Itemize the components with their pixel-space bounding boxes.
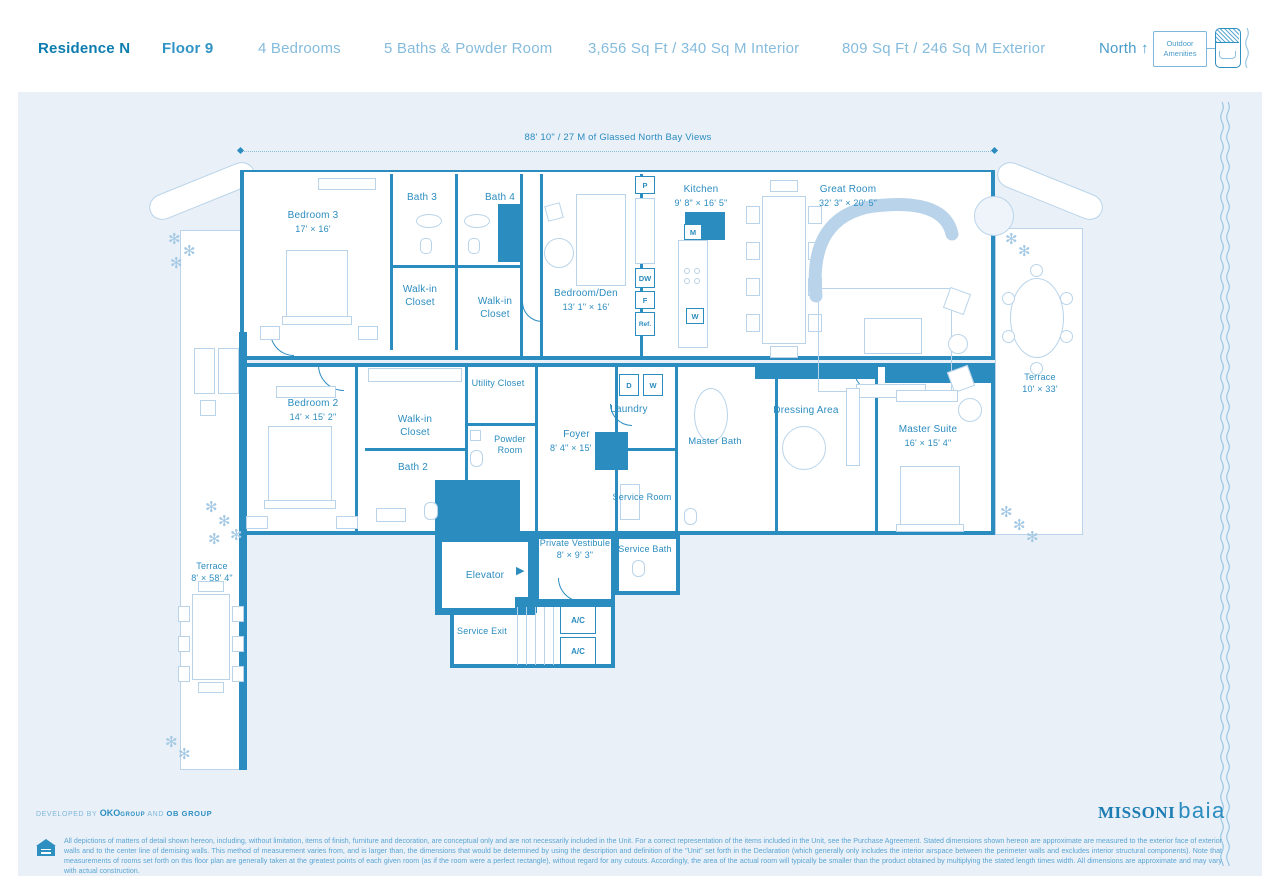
room-dims: 8' × 9' 3" [531,550,619,561]
toilet [468,238,480,254]
residence-title: Residence N [38,40,130,57]
cooktop-burner [694,268,700,274]
floor-label: Floor 9 [162,40,213,57]
room-name: Terrace [1010,372,1070,383]
wall-segment [540,174,543,356]
room-label-laundry: Laundry [598,404,660,417]
developed-by-and: AND [147,811,164,818]
equal-bar [41,849,51,851]
room-name: Bedroom/Den [540,288,632,301]
ac-unit: A/C [560,637,596,665]
north-indicator: North ↑ [1099,40,1149,57]
wine-cooler-box: W [686,308,704,324]
plan-panel: 88' 10" / 27 M of Glassed North Bay View… [18,92,1262,876]
plant-icon: ✻ [178,747,191,762]
wall-segment [775,367,778,531]
glass-view-note: 88' 10" / 27 M of Glassed North Bay View… [418,132,818,144]
room-label-elevator: Elevator [442,570,528,583]
room-label-service-exit: Service Exit [454,626,510,637]
dresser [896,390,958,402]
dining-chair [746,242,760,260]
developer-oko-suffix: GROUP [120,812,145,818]
dining-chair [746,206,760,224]
sink [416,214,442,228]
desk [576,194,626,286]
dresser [276,386,336,398]
room-dims: 17' × 16' [243,224,383,235]
kitchen-island [678,240,708,348]
side-table [948,334,968,354]
room-dims: 8' × 58' 4" [182,573,242,584]
dimension-line [242,151,993,152]
wall-segment [675,367,678,531]
column-decoration [974,196,1014,236]
terrace-table [1010,278,1064,358]
room-label-kitchen: Kitchen 9' 8" × 16' 5" [655,184,747,209]
fridge-box: Ref. [635,312,655,336]
interior-area-label: 3,656 Sq Ft / 340 Sq M Interior [588,40,799,57]
plant-icon: ✻ [1018,244,1031,259]
developer-ob-logo: OB GROUP [167,809,213,818]
room-label-walkin-closet-3: Walk-in Closet [385,414,445,439]
lounge-chair [218,348,239,394]
wall-segment [355,367,358,531]
developed-by-line: DEVELOPED BY OKOGROUP AND OB GROUP [36,808,212,818]
room-label-utility-closet: Utility Closet [468,378,528,389]
terrace-chair [1060,292,1073,305]
equal-housing-icon [36,839,56,857]
terrace-chair [232,636,244,652]
equal-bar [41,852,51,854]
plant-icon: ✻ [1000,505,1013,520]
bed-headboard [282,316,352,325]
room-dims: 9' 8" × 16' 5" [655,198,747,209]
terrace-chair [1030,264,1043,277]
terrace-chair [178,606,190,622]
pantry-box: P [635,176,655,194]
cooktop-burner [684,268,690,274]
outdoor-amenities-legend: Outdoor Amenities [1153,31,1207,67]
dryer-box: D [619,374,639,396]
coffee-table [864,318,922,354]
room-dims: 16' × 15' 4" [878,438,978,449]
room-name: Private Vestibule [531,538,619,549]
window-box [246,516,268,529]
plant-icon: ✻ [165,735,178,750]
wall-segment [465,423,535,426]
washer-box: W [643,374,663,396]
sink [464,214,490,228]
baths-label: 5 Baths & Powder Room [384,40,552,57]
cabinet [635,198,655,264]
wall-segment [455,174,458,350]
plant-icon: ✻ [183,244,196,259]
ottoman [782,426,826,470]
room-label-master-suite: Master Suite 16' × 15' 4" [878,424,978,449]
floor-plan-sheet: { "header": { "residence": "Residence N"… [0,0,1280,896]
terrace-chair [178,666,190,682]
toilet [470,450,483,467]
room-dims: 13' 1" × 16' [540,302,632,313]
closet-shelf [846,388,860,466]
room-label-terrace-left: Terrace 8' × 58' 4" [182,561,242,585]
terrace-chair [178,636,190,652]
terrace-chair [1060,330,1073,343]
room-dims: 10' × 33' [1010,384,1070,395]
round-table [544,238,574,268]
vanity [376,508,406,522]
room-label-service-bath: Service Bath [614,544,676,555]
plant-icon: ✻ [1013,518,1026,533]
side-table [200,400,216,416]
toilet [424,502,438,520]
bedrooms-label: 4 Bedrooms [258,40,341,57]
nightstand [260,326,280,340]
room-label-bath3: Bath 3 [392,192,452,205]
house-body [37,846,55,856]
freezer-box: F [635,291,655,309]
bed [900,466,960,528]
dimension-endpoint [237,147,244,154]
plant-icon: ✻ [170,256,183,271]
toilet [684,508,697,525]
terrace-chair [232,666,244,682]
header-bar: Residence N Floor 9 4 Bedrooms 5 Baths &… [0,0,1280,92]
wall-fill [435,480,520,535]
wall-fill [498,204,520,262]
terrace-chair [1002,330,1015,343]
legal-disclaimer: All depictions of matters of detail show… [64,836,1222,876]
plant-icon: ✻ [1005,232,1018,247]
amenity-pool-line [1219,51,1236,59]
room-name: Bedroom 3 [243,210,383,223]
wall-fill [239,332,247,770]
microwave-box: M [684,224,702,240]
brand-missoni: MISSONI [1098,803,1175,823]
toilet [420,238,432,254]
cooktop-burner [684,278,690,284]
room-label-walkin-closet-1: Walk-in Closet [395,284,445,309]
plant-icon: ✻ [230,528,243,543]
room-dims: 8' 4" × 15' 5" [529,443,624,454]
dresser [318,178,376,190]
room-name: Terrace [182,561,242,572]
ac-unit: A/C [560,606,596,634]
room-label-service-room: Service Room [610,492,674,503]
bathtub [694,388,728,442]
amenity-hatch-band [1216,29,1239,43]
outdoor-amenities-icon [1215,28,1241,68]
round-chair [958,398,982,422]
sofa [804,196,959,306]
house-roof [36,839,56,846]
sink [470,430,481,441]
room-label-powder-room: Powder Room [486,434,534,457]
bed [268,426,332,508]
room-label-bath4: Bath 4 [470,192,530,205]
dining-chair [746,314,760,332]
plant-icon: ✻ [205,500,218,515]
room-name: Kitchen [655,184,747,197]
bed-headboard [264,500,336,509]
dimension-endpoint [991,147,998,154]
exterior-area-label: 809 Sq Ft / 246 Sq M Exterior [842,40,1045,57]
stairs [517,607,555,665]
room-name: Bedroom 2 [248,398,378,411]
room-label-vestibule: Private Vestibule 8' × 9' 3" [531,538,619,562]
room-name: Great Room [783,184,913,197]
room-label-dressing-area: Dressing Area [756,405,856,418]
wall-segment [390,265,523,268]
plant-icon: ✻ [168,232,181,247]
terrace-chair [232,606,244,622]
room-label-foyer: Foyer 8' 4" × 15' 5" [529,429,624,454]
room-name: Foyer [529,429,624,442]
closet-shelf [368,368,462,382]
room-label-walkin-closet-2: Walk-in Closet [470,296,520,321]
room-label-terrace-right: Terrace 10' × 33' [1010,372,1070,396]
plant-icon: ✻ [218,514,231,529]
dining-chair [770,346,798,358]
bed [286,250,348,324]
plant-icon: ✻ [208,532,221,547]
terrace-chair [1002,292,1015,305]
room-label-great-room: Great Room 32' 3" × 20' 5" [783,184,913,209]
room-name: Master Suite [878,424,978,437]
developer-oko-logo: OKO [100,808,121,818]
legend-connector [1207,48,1215,49]
developed-by-prefix: DEVELOPED BY [36,811,97,818]
room-label-bedroom-den: Bedroom/Den 13' 1" × 16' [540,288,632,313]
room-dims: 32' 3" × 20' 5" [783,198,913,209]
toilet [632,560,645,577]
brand-baia: baia [1178,798,1226,824]
wall-segment [365,448,465,451]
terrace-table [192,594,230,680]
plant-icon: ✻ [1026,530,1039,545]
lounge-chair [194,348,215,394]
nightstand [358,326,378,340]
window-box [336,516,358,529]
brand-logo: MISSONI baia [1098,798,1226,824]
room-label-bedroom3: Bedroom 3 17' × 16' [243,210,383,235]
dishwasher-box: DW [635,268,655,288]
room-label-bedroom2: Bedroom 2 14' × 15' 2" [248,398,378,423]
water-edge-icon [1243,28,1255,73]
dining-chair [746,278,760,296]
room-label-bath2: Bath 2 [373,462,453,475]
cooktop-burner [694,278,700,284]
room-label-master-bath: Master Bath [684,436,746,448]
terrace-chair [198,682,224,693]
room-dims: 14' × 15' 2" [248,412,378,423]
water-edge-icon [1218,102,1236,871]
bed-headboard [896,524,964,532]
dining-table [762,196,806,344]
